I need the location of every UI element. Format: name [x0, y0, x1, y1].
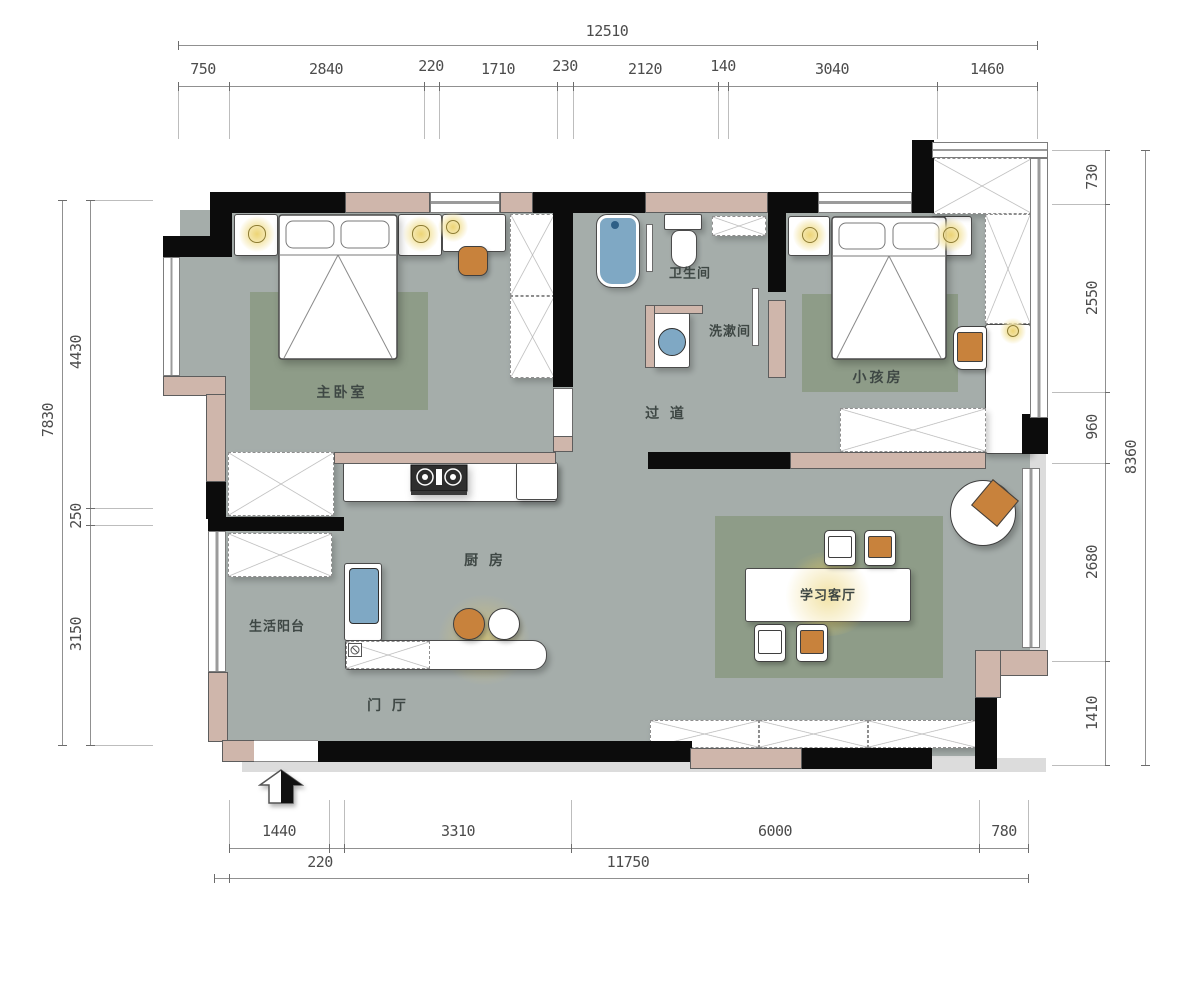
dim-tick	[1037, 82, 1038, 91]
wall-segment	[532, 192, 646, 213]
dim-top-seg: 2120	[628, 60, 662, 78]
dim-right-seg: 1410	[1083, 696, 1101, 730]
tv-cabinet	[759, 720, 868, 748]
closet	[932, 158, 1032, 214]
chair-seat	[957, 332, 983, 362]
lamp-icon	[438, 212, 468, 242]
room-label-washroom: 洗漱间	[709, 321, 751, 340]
dim-tick	[1141, 150, 1150, 151]
dim-tick	[1028, 874, 1029, 883]
window	[932, 142, 1048, 158]
dim-line	[90, 200, 91, 745]
wardrobe	[228, 452, 334, 516]
wall-segment	[975, 697, 997, 769]
lamp-icon	[934, 218, 968, 252]
witness-line	[344, 800, 345, 844]
bar-stool	[453, 608, 485, 640]
dim-right-seg: 730	[1083, 164, 1101, 190]
dim-tick	[86, 745, 95, 746]
wall-segment	[690, 748, 802, 769]
lamp-icon	[403, 216, 439, 252]
wall-segment	[222, 740, 256, 762]
wall-segment	[553, 213, 573, 387]
desk-chair	[953, 326, 987, 370]
dim-right-seg: 2550	[1083, 281, 1101, 315]
dim-top-total: 12510	[586, 22, 629, 40]
witness-line	[95, 525, 153, 526]
dim-top-seg: 2840	[309, 60, 343, 78]
dining-chair	[796, 624, 828, 662]
kitchen-appliance	[516, 462, 558, 500]
entry-door-opening	[254, 740, 318, 762]
witness-line	[229, 800, 230, 844]
wall-segment	[163, 236, 232, 257]
witness-line	[557, 91, 558, 139]
dim-right-seg: 2680	[1083, 545, 1101, 579]
wall-segment	[645, 305, 655, 368]
room-label-kids-room: 小孩房	[853, 367, 904, 387]
door-leaf	[646, 224, 653, 272]
dim-tick	[86, 200, 95, 201]
witness-line	[728, 91, 729, 139]
room-label-entry-hall: 门 厅	[367, 695, 409, 715]
dim-top-seg: 1460	[970, 60, 1004, 78]
witness-line	[1052, 204, 1105, 205]
dim-bottom-seg: 11750	[607, 853, 650, 871]
wall-segment	[206, 394, 226, 482]
witness-line	[1052, 463, 1105, 464]
dim-tick	[58, 200, 67, 201]
dim-tick	[58, 745, 67, 746]
dressing-stool	[458, 246, 488, 276]
witness-line	[1052, 150, 1105, 151]
dim-left-seg: 3150	[67, 617, 85, 651]
dim-line	[178, 45, 1037, 46]
room-label-master-bedroom: 主卧室	[317, 382, 368, 402]
wall-segment	[912, 140, 934, 213]
witness-line	[178, 91, 179, 139]
dim-tick	[424, 82, 425, 91]
wall-segment	[206, 481, 226, 519]
window	[1030, 158, 1048, 418]
witness-line	[1037, 91, 1038, 139]
dim-line	[1145, 150, 1146, 765]
dim-bottom-seg: 220	[307, 853, 333, 871]
wall-segment	[645, 192, 768, 213]
dim-tick	[1141, 765, 1150, 766]
window	[208, 531, 226, 672]
witness-line	[1028, 800, 1029, 844]
wardrobe	[510, 214, 555, 296]
wall-segment	[768, 192, 820, 213]
room-label-corridor: 过 道	[645, 403, 687, 423]
bar-stool	[488, 608, 520, 640]
floor-plan-canvas: 主卧室 卫生间 洗漱间 过 道 小孩房 厨 房 生活阳台 门 厅 学习客厅 12…	[0, 0, 1200, 991]
dim-bottom-seg: 780	[991, 822, 1017, 840]
witness-line	[1052, 392, 1105, 393]
dim-line	[1105, 150, 1106, 765]
chair-seat	[828, 536, 852, 558]
dim-top-seg: 140	[710, 57, 736, 75]
washer-icon	[348, 643, 362, 657]
washbasin-icon	[658, 328, 686, 356]
dim-tick	[439, 82, 440, 91]
lamp-icon	[1000, 318, 1026, 344]
kids-bed	[831, 216, 947, 360]
dim-left-seg: 250	[67, 503, 85, 529]
dim-tick	[979, 844, 980, 853]
dim-tick	[229, 844, 230, 853]
wall-segment	[345, 192, 430, 213]
witness-line	[573, 91, 574, 139]
chair-seat	[800, 630, 824, 654]
dining-chair	[754, 624, 786, 662]
door-leaf	[752, 288, 759, 346]
kitchen-sink-icon	[349, 568, 379, 624]
toilet-tank	[664, 214, 702, 230]
dim-left-seg: 4430	[67, 335, 85, 369]
window	[818, 192, 912, 213]
witness-line	[95, 508, 153, 509]
wall-segment	[334, 452, 556, 464]
entrance-arrow-icon	[258, 768, 304, 806]
balcony-cabinet	[228, 533, 332, 577]
witness-line	[329, 800, 330, 844]
dim-line	[214, 878, 1028, 879]
dim-line	[62, 200, 63, 745]
wall-segment	[163, 376, 226, 396]
dining-chair	[824, 530, 856, 566]
dim-tick	[937, 82, 938, 91]
dim-line	[178, 86, 1037, 87]
dim-tick	[1037, 41, 1038, 50]
dim-tick	[178, 82, 179, 91]
chair-seat	[758, 630, 782, 654]
dim-top-seg: 230	[552, 57, 578, 75]
witness-line	[979, 800, 980, 844]
wall-segment	[790, 452, 986, 469]
room-label-living-balcony: 生活阳台	[249, 616, 305, 635]
wall-segment	[1022, 414, 1048, 454]
witness-line	[95, 745, 153, 746]
wall-segment	[768, 213, 786, 292]
door-leaf	[553, 388, 573, 438]
witness-line	[1052, 765, 1105, 766]
dim-tick	[573, 82, 574, 91]
room-label-bathroom: 卫生间	[669, 263, 711, 282]
wall-segment	[553, 436, 573, 452]
dim-line	[229, 848, 1028, 849]
witness-line	[718, 91, 719, 139]
hall-cabinet	[840, 408, 986, 452]
room-label-study-living: 学习客厅	[800, 585, 856, 604]
dim-tick	[1028, 844, 1029, 853]
room-label-kitchen: 厨 房	[464, 550, 506, 570]
witness-line	[1052, 661, 1105, 662]
wall-segment	[768, 300, 786, 378]
dim-top-seg: 1710	[481, 60, 515, 78]
bathtub-faucet	[611, 221, 619, 229]
dim-right-total: 8360	[1122, 440, 1140, 474]
dim-tick	[718, 82, 719, 91]
wardrobe	[510, 296, 555, 378]
wall-segment	[500, 192, 533, 213]
dim-top-seg: 220	[418, 57, 444, 75]
dim-tick	[214, 874, 215, 883]
window	[430, 192, 500, 213]
stove-icon	[410, 464, 468, 496]
dim-right-seg: 960	[1083, 414, 1101, 440]
witness-line	[95, 200, 153, 201]
lamp-icon	[793, 218, 827, 252]
dim-tick	[229, 82, 230, 91]
dim-tick	[344, 844, 345, 853]
dim-tick	[329, 844, 330, 853]
witness-line	[937, 91, 938, 139]
witness-line	[571, 800, 572, 844]
window	[163, 257, 180, 376]
dim-tick	[178, 41, 179, 50]
witness-line	[439, 91, 440, 139]
wall-segment	[208, 672, 228, 742]
dining-chair	[864, 530, 896, 566]
dim-top-seg: 3040	[815, 60, 849, 78]
lamp-icon	[239, 216, 275, 252]
dim-tick	[571, 844, 572, 853]
closet	[985, 214, 1031, 324]
witness-line	[229, 91, 230, 139]
dim-top-seg: 750	[190, 60, 216, 78]
dim-tick	[86, 525, 95, 526]
wall-segment	[802, 748, 932, 769]
dim-bottom-seg: 3310	[441, 822, 475, 840]
wall-segment	[975, 650, 1001, 698]
dim-tick	[728, 82, 729, 91]
wall-segment	[208, 517, 344, 531]
tv-cabinet	[868, 720, 976, 748]
dim-tick	[86, 508, 95, 509]
dim-tick	[229, 874, 230, 883]
dim-bottom-seg: 6000	[758, 822, 792, 840]
witness-line	[424, 91, 425, 139]
dim-left-total: 7830	[39, 403, 57, 437]
master-bed	[278, 214, 398, 360]
dim-bottom-seg: 1440	[262, 822, 296, 840]
chair-seat	[868, 536, 892, 558]
bath-mat	[712, 216, 766, 236]
wall-segment	[648, 452, 790, 469]
window	[1022, 468, 1040, 648]
dim-tick	[557, 82, 558, 91]
wall-segment	[318, 741, 692, 762]
